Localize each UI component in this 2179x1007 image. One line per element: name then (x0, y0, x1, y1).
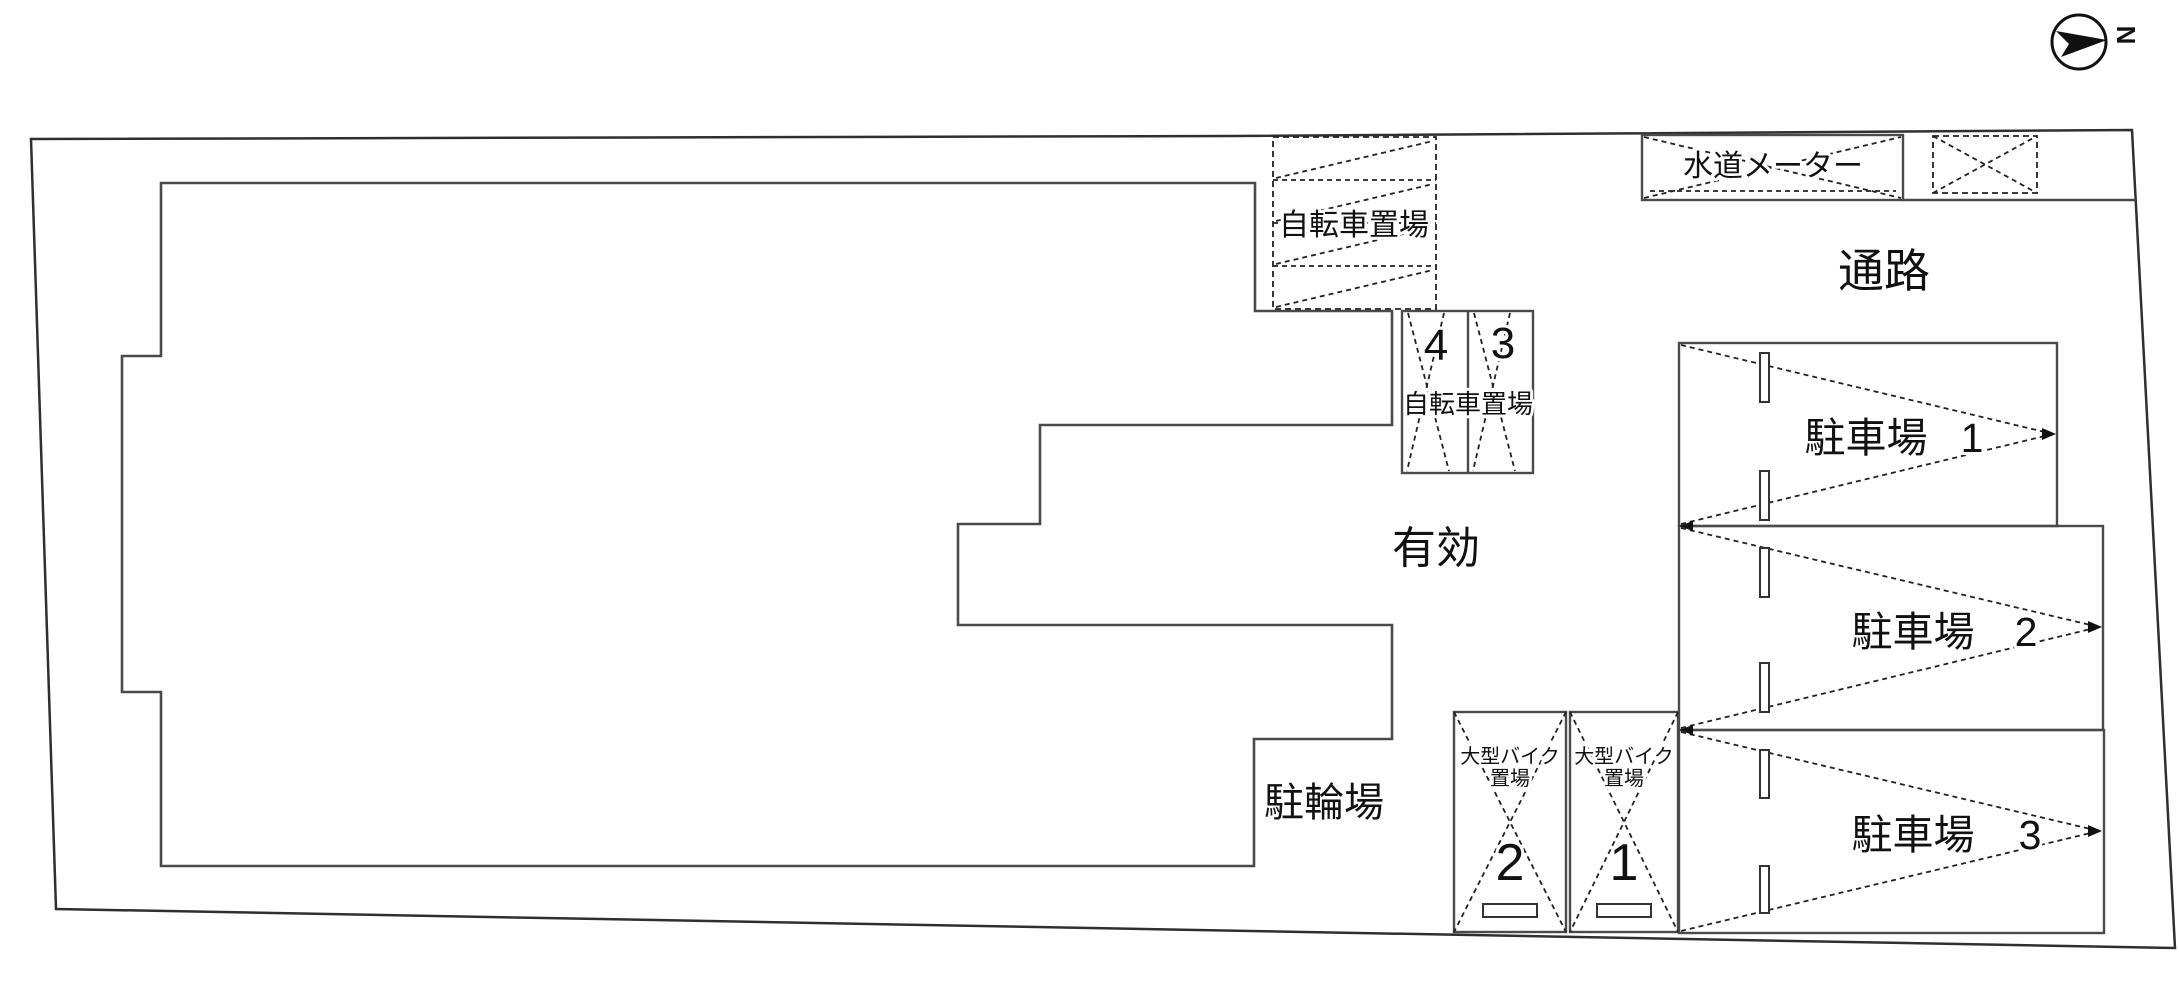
water-meter-label: 水道メーター (1683, 150, 1863, 183)
parking-space-3-number: 3 (2019, 812, 2042, 858)
bicycle-rack-label: 自転車置場 (1403, 389, 1533, 419)
wheel-stopper (1597, 904, 1651, 917)
parking-space-2-arrow (2088, 621, 2102, 633)
bicycle-rack: 4 3 自転車置場 (1402, 311, 1533, 473)
bicycle-row-mark (1276, 141, 1433, 178)
parking-space-3-label: 駐車場 (1852, 812, 1975, 858)
parking-space-1-arrow (2042, 428, 2056, 440)
bicycle-parking-top: 自転車置場 (1273, 137, 1436, 309)
effective-area-label: 有効 (1392, 524, 1480, 573)
north-arrow-letter: N (2111, 26, 2141, 45)
parking-space-3-arrow (1679, 725, 1693, 735)
motorcycle-stall-1-number: 1 (1610, 834, 1639, 892)
wheel-stopper (1760, 663, 1769, 712)
parking-space-2: 駐車場 2 (1679, 521, 2103, 730)
parking-space-1-label: 駐車場 (1805, 415, 1928, 461)
motorcycle-stall-1-label-line2: 置場 (1604, 767, 1644, 790)
motorcycle-stall-2: 大型バイク 置場 2 (1454, 712, 1566, 932)
parking-space-3: 駐車場 3 (1679, 725, 2104, 933)
bicycle-area-label: 駐輪場 (1264, 781, 1384, 825)
parking-space-3-arrow (2088, 825, 2102, 837)
motorcycle-stall-1: 大型バイク 置場 1 (1570, 712, 1678, 932)
parking-space-2-label: 駐車場 (1852, 609, 1975, 655)
bicycle-parking-top-label: 自転車置場 (1279, 209, 1429, 242)
motorcycle-stall-2-label-line2: 置場 (1490, 767, 1530, 790)
parking-space-2-arrow (1679, 521, 1693, 531)
passage-label: 通路 (1838, 245, 1930, 297)
motorcycle-stall-2-number: 2 (1496, 834, 1525, 892)
parking-space-2-number: 2 (2015, 609, 2038, 655)
wheel-stopper (1483, 904, 1537, 917)
wheel-stopper (1760, 471, 1769, 520)
site-plan-drawing: 自転車置場 4 3 自転車置場 水道メーター 駐車場 1 (0, 0, 2179, 1007)
wheel-stopper (1760, 750, 1769, 798)
bicycle-stall-4-number: 4 (1424, 321, 1448, 370)
water-meter: 水道メーター (1642, 135, 2136, 200)
parking-space-1-number: 1 (1961, 415, 1984, 461)
motorcycle-stall-1-label-line1: 大型バイク (1574, 745, 1674, 768)
site-plan-page: 自転車置場 4 3 自転車置場 水道メーター 駐車場 1 (0, 0, 2179, 1007)
motorcycle-stall-2-label-line1: 大型バイク (1460, 745, 1560, 768)
crossed-utility-box (1933, 136, 2037, 193)
parking-space-1: 駐車場 1 (1679, 343, 2057, 526)
wheel-stopper (1760, 866, 1769, 913)
bicycle-stall-3-number: 3 (1491, 319, 1515, 368)
building-outline (122, 183, 1392, 866)
north-arrow: N (2052, 15, 2141, 69)
wheel-stopper (1760, 548, 1769, 597)
bicycle-row-mark (1276, 270, 1433, 307)
wheel-stopper (1760, 353, 1769, 402)
